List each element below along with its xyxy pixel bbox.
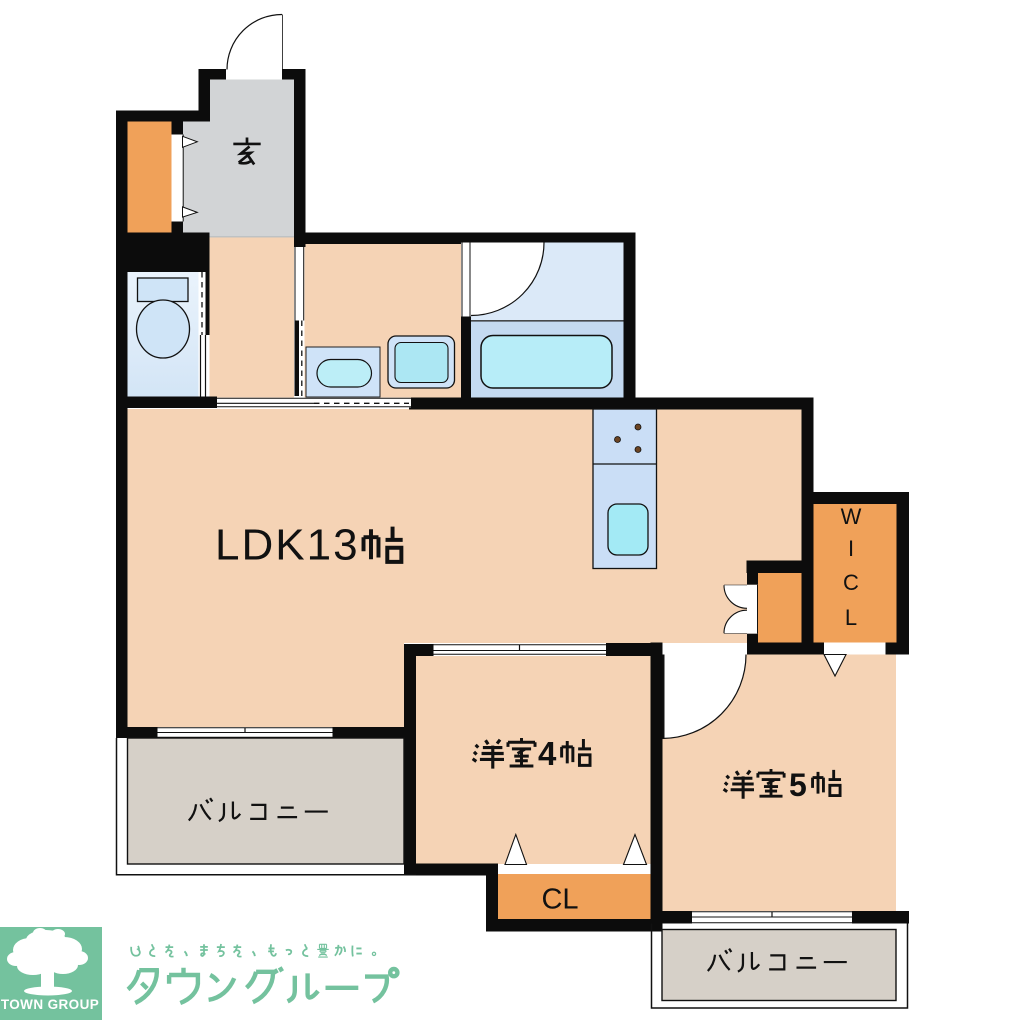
svg-text:TOWN GROUP: TOWN GROUP (1, 997, 99, 1012)
svg-text:LDK13: LDK13 (215, 521, 360, 570)
svg-text:I: I (848, 536, 854, 561)
svg-text:5: 5 (789, 767, 807, 803)
svg-text:CL: CL (541, 884, 578, 916)
svg-text:4: 4 (538, 735, 557, 772)
svg-text:L: L (845, 605, 857, 630)
svg-text:W: W (841, 504, 862, 529)
svg-text:C: C (843, 570, 859, 595)
